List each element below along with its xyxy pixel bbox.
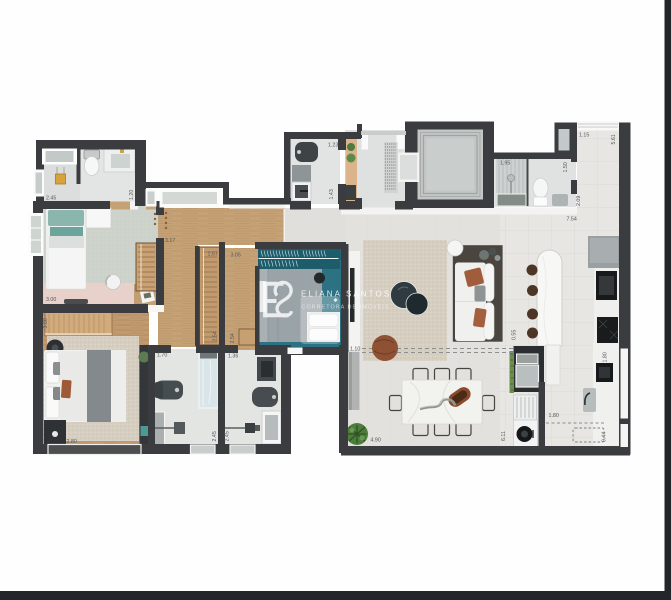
svg-text:2.54: 2.54 (230, 333, 236, 343)
svg-text:3.00: 3.00 (46, 297, 56, 303)
svg-text:2.45: 2.45 (46, 196, 56, 202)
svg-text:2.54: 2.54 (213, 331, 219, 341)
svg-text:1.10: 1.10 (350, 347, 360, 353)
svg-text:CORRETORA DE IMÓVEIS: CORRETORA DE IMÓVEIS (302, 304, 390, 311)
svg-text:1.36: 1.36 (228, 354, 238, 360)
svg-text:2.09: 2.09 (576, 196, 582, 206)
svg-text:3.17: 3.17 (165, 238, 175, 244)
svg-text:3.60: 3.60 (43, 318, 49, 328)
svg-text:2.45: 2.45 (225, 431, 231, 441)
svg-text:1.20: 1.20 (129, 190, 135, 200)
svg-text:5.61: 5.61 (611, 134, 617, 144)
svg-text:2.45: 2.45 (212, 431, 218, 441)
svg-text:2.80: 2.80 (67, 439, 77, 445)
svg-text:ELIANA SANTOS: ELIANA SANTOS (301, 290, 391, 299)
svg-text:1.43: 1.43 (329, 189, 335, 199)
svg-text:0.44: 0.44 (602, 432, 608, 442)
svg-text:1.80: 1.80 (603, 352, 609, 362)
svg-text:7.54: 7.54 (567, 217, 577, 223)
svg-text:1.15: 1.15 (579, 133, 589, 139)
svg-text:1.57: 1.57 (208, 252, 218, 258)
svg-text:0.55: 0.55 (512, 330, 518, 340)
svg-text:3.05: 3.05 (231, 253, 241, 259)
svg-text:1.23: 1.23 (328, 143, 338, 149)
svg-text:6.11: 6.11 (501, 431, 507, 441)
svg-text:4.90: 4.90 (371, 438, 381, 444)
svg-text:1.80: 1.80 (549, 413, 559, 419)
svg-text:1.95: 1.95 (500, 161, 510, 167)
svg-text:1.50: 1.50 (563, 162, 569, 172)
svg-text:1.70: 1.70 (157, 353, 167, 359)
